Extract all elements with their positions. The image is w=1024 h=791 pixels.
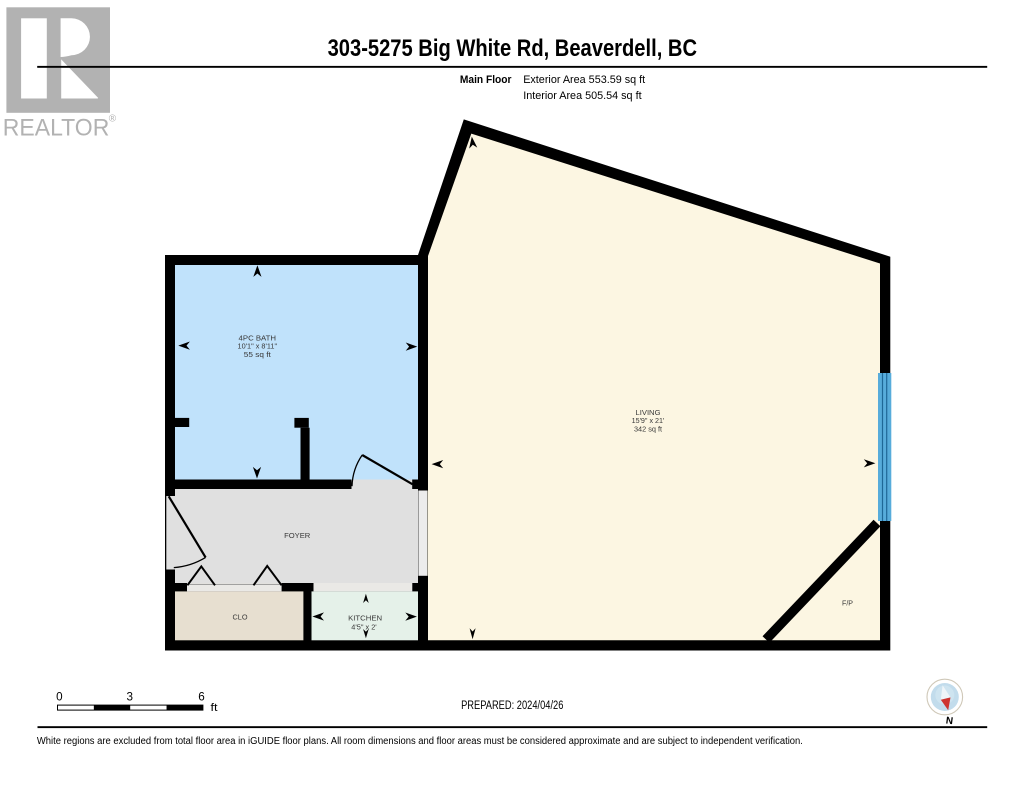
svg-text:PREPARED: 2024/04/26: PREPARED: 2024/04/26: [461, 700, 563, 712]
svg-text:ft: ft: [211, 702, 218, 714]
svg-text:Main Floor: Main Floor: [460, 74, 512, 86]
svg-text:6: 6: [198, 689, 205, 703]
svg-text:303-5275 Big White Rd, Beaverd: 303-5275 Big White Rd, Beaverdell, BC: [328, 35, 698, 62]
svg-text:CLO: CLO: [233, 613, 248, 622]
svg-text:Exterior Area 553.59 sq ft: Exterior Area 553.59 sq ft: [523, 74, 646, 86]
svg-text:F/P: F/P: [842, 599, 853, 608]
svg-text:White regions are excluded fro: White regions are excluded from total fl…: [37, 736, 803, 747]
svg-text:FOYER: FOYER: [284, 531, 311, 540]
svg-text:KITCHEN: KITCHEN: [348, 614, 382, 623]
svg-text:342 sq ft: 342 sq ft: [634, 424, 663, 433]
svg-text:N: N: [945, 715, 954, 727]
svg-text:®: ®: [109, 113, 117, 124]
svg-text:3: 3: [127, 689, 134, 703]
svg-text:0: 0: [56, 689, 63, 703]
svg-text:55 sq ft: 55 sq ft: [244, 350, 272, 359]
svg-text:REALTOR: REALTOR: [3, 115, 110, 142]
svg-text:4'5" x 2': 4'5" x 2': [351, 622, 377, 631]
svg-text:Interior Area 505.54 sq ft: Interior Area 505.54 sq ft: [523, 90, 642, 102]
